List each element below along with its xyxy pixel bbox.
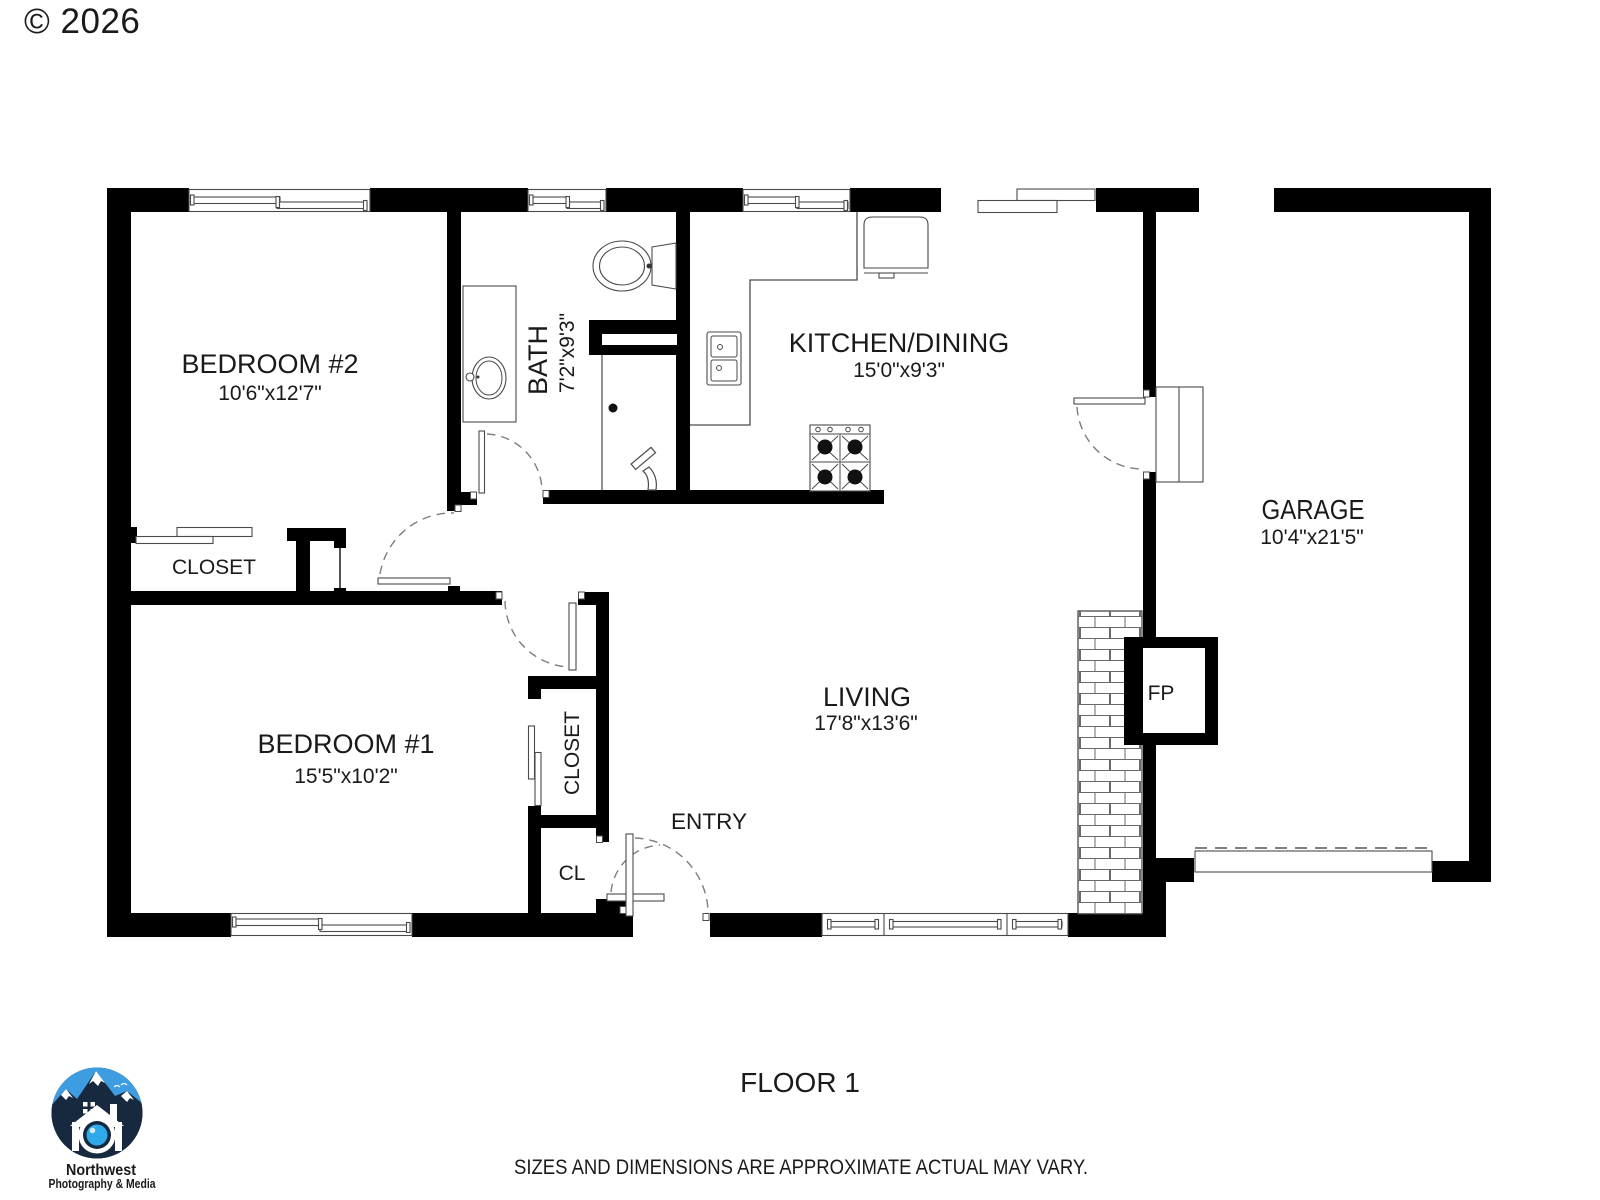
svg-text:FLOOR 1: FLOOR 1	[740, 1067, 860, 1098]
svg-text:Photography & Media: Photography & Media	[49, 1177, 157, 1191]
svg-text:SIZES AND DIMENSIONS ARE APPRO: SIZES AND DIMENSIONS ARE APPROXIMATE ACT…	[514, 1156, 1088, 1179]
svg-text:FP: FP	[1148, 682, 1175, 705]
svg-text:BATH: BATH	[523, 325, 553, 395]
svg-text:LIVING: LIVING	[823, 682, 911, 712]
svg-text:BEDROOM #1: BEDROOM #1	[257, 729, 434, 759]
svg-text:15'0"x9'3": 15'0"x9'3"	[853, 359, 945, 382]
svg-text:7'2"x9'3": 7'2"x9'3"	[556, 313, 579, 393]
svg-text:GARAGE: GARAGE	[1262, 494, 1365, 525]
svg-text:17'8"x13'6": 17'8"x13'6"	[814, 712, 918, 735]
svg-text:10'4"x21'5": 10'4"x21'5"	[1260, 526, 1364, 549]
svg-text:KITCHEN/DINING: KITCHEN/DINING	[789, 328, 1010, 358]
svg-text:10'6"x12'7": 10'6"x12'7"	[218, 382, 322, 405]
svg-text:ENTRY: ENTRY	[671, 809, 747, 834]
svg-text:CLOSET: CLOSET	[172, 556, 256, 579]
svg-text:15'5"x10'2": 15'5"x10'2"	[294, 765, 398, 788]
svg-text:CL: CL	[559, 862, 586, 885]
svg-text:CLOSET: CLOSET	[561, 711, 584, 795]
svg-text:BEDROOM #2: BEDROOM #2	[181, 349, 358, 379]
svg-text:© 2026: © 2026	[24, 2, 140, 41]
